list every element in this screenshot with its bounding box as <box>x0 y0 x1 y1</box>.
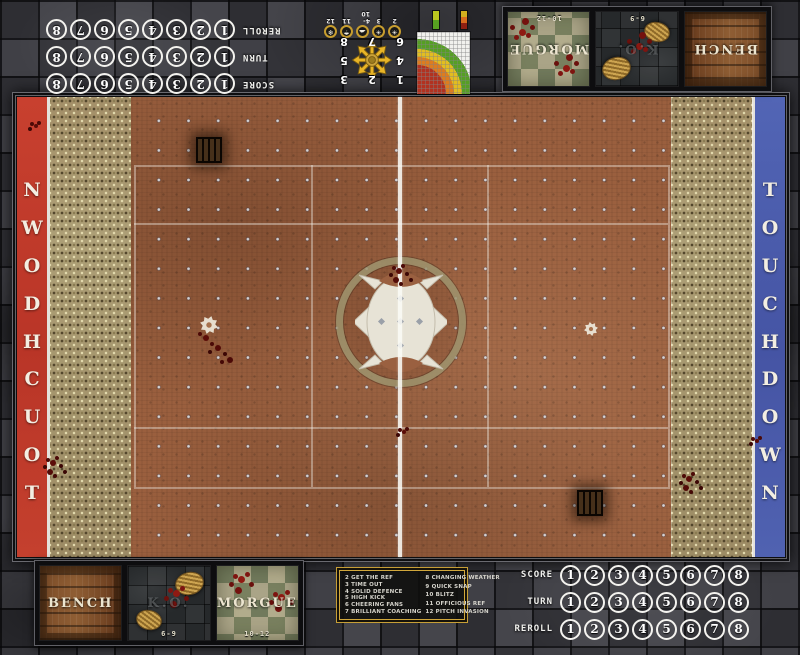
kickoff-entry: 9 QUICK SNAP <box>425 584 499 590</box>
trapdoor <box>577 490 603 516</box>
track-number-circle[interactable]: 2 <box>190 74 211 95</box>
kickoff-entry: 8 CHANGING WEATHER <box>425 575 499 581</box>
morgue-range: 10-12 <box>217 630 298 638</box>
scatter-2: 2 <box>358 70 386 89</box>
track-number-circle[interactable]: 8 <box>728 619 749 640</box>
score-track: SCORE 12345678 <box>505 564 757 586</box>
score-track: SCORE 12345678 <box>38 73 290 95</box>
scatter-8: 8 <box>330 32 358 51</box>
score-circles: 12345678 <box>46 74 235 95</box>
reroll-circles: 12345678 <box>46 20 235 41</box>
track-number-circle[interactable]: 4 <box>632 619 653 640</box>
kickoff-entry: 5 HIGH KICK <box>345 595 421 601</box>
track-number-circle[interactable]: 5 <box>118 74 139 95</box>
track-number-circle[interactable]: 1 <box>214 20 235 41</box>
kickoff-table-left-column: 2 GET THE REF3 TIME OUT4 SOLID DEFENCE5 … <box>345 575 421 615</box>
morgue-label: MORGUE <box>508 42 589 57</box>
halfway-line <box>398 97 402 557</box>
opponent-bench-zone[interactable]: BENCH <box>684 11 767 87</box>
weather-roll-label: 3 <box>376 17 380 24</box>
weather-roll-label: 11 <box>342 17 351 24</box>
ko-range: 6-9 <box>596 14 677 22</box>
track-number-circle[interactable]: 5 <box>656 619 677 640</box>
player-bench-zone[interactable]: BENCH <box>39 565 122 641</box>
track-number-circle[interactable]: 1 <box>560 592 581 613</box>
scatter-4: 4 <box>386 51 414 70</box>
morgue-label: MORGUE <box>217 596 298 611</box>
range-marker-bars <box>432 10 468 30</box>
blood-splatter <box>570 69 575 74</box>
turn-circles: 12345678 <box>46 47 235 68</box>
reroll-track: REROLL 12345678 <box>505 618 757 640</box>
track-number-circle[interactable]: 4 <box>142 47 163 68</box>
track-number-circle[interactable]: 8 <box>46 20 67 41</box>
track-number-circle[interactable]: 3 <box>166 47 187 68</box>
blood-bowl-game-mat: SCORE 12345678 TURN 12345678 REROLL 1234… <box>0 0 800 655</box>
kickoff-entry: 4 SOLID DEFENCE <box>345 589 421 595</box>
end-zone-left[interactable]: TOUCHDOWN <box>17 97 47 557</box>
blood-splatter <box>168 588 173 593</box>
player-ko-zone[interactable]: K.O. 6-9 <box>127 565 210 641</box>
track-number-circle[interactable]: 3 <box>166 74 187 95</box>
track-number-circle[interactable]: 3 <box>608 592 629 613</box>
score-label: SCORE <box>505 570 553 580</box>
track-number-circle[interactable]: 3 <box>608 619 629 640</box>
player-track-panel: SCORE 12345678 TURN 12345678 REROLL 1234… <box>505 564 757 646</box>
opponent-morgue-zone[interactable]: MORGUE 10-12 <box>507 11 590 87</box>
end-zone-right[interactable]: TOUCHDOWN <box>755 97 785 557</box>
track-number-circle[interactable]: 6 <box>94 20 115 41</box>
track-number-circle[interactable]: 1 <box>560 565 581 586</box>
playing-field[interactable] <box>131 97 671 557</box>
bench-label: BENCH <box>48 596 113 611</box>
scatter-6: 6 <box>386 32 414 51</box>
blood-splatter <box>526 33 531 38</box>
player-morgue-zone[interactable]: MORGUE 10-12 <box>216 565 299 641</box>
field-line-vertical-right <box>487 165 489 487</box>
track-number-circle[interactable]: 8 <box>728 592 749 613</box>
turn-circles: 12345678 <box>560 592 749 613</box>
track-number-circle[interactable]: 2 <box>584 592 605 613</box>
turn-track: TURN 12345678 <box>505 591 757 613</box>
hay-bale <box>600 54 634 83</box>
kickoff-table: 2 GET THE REF3 TIME OUT4 SOLID DEFENCE5 … <box>339 570 465 620</box>
turn-label: TURN <box>242 52 290 62</box>
track-number-circle[interactable]: 1 <box>214 74 235 95</box>
kickoff-entry: 7 BRILLIANT COACHING <box>345 609 421 615</box>
score-label: SCORE <box>242 79 290 89</box>
ko-label: K.O. <box>148 596 191 611</box>
trapdoor <box>196 137 222 163</box>
track-number-circle[interactable]: 4 <box>142 20 163 41</box>
marker-bar-green <box>432 10 440 30</box>
track-number-circle[interactable]: 7 <box>70 47 91 68</box>
track-number-circle[interactable]: 2 <box>584 565 605 586</box>
turn-track: TURN 12345678 <box>38 46 290 68</box>
reroll-label: REROLL <box>505 624 553 634</box>
track-number-circle[interactable]: 7 <box>70 20 91 41</box>
field-line-vertical-left <box>311 165 313 487</box>
scatter-3: 3 <box>330 70 358 89</box>
track-number-circle[interactable]: 2 <box>190 20 211 41</box>
scatter-center <box>358 51 386 70</box>
track-number-circle[interactable]: 4 <box>632 592 653 613</box>
track-number-circle[interactable]: 5 <box>118 47 139 68</box>
kickoff-entry: 10 BLITZ <box>425 592 499 598</box>
gear-logo-icon <box>579 317 602 340</box>
ko-range: 6-9 <box>128 630 209 638</box>
opponent-dugout: BENCH K.O. 6-9 MORGUE 10-12 <box>502 6 772 92</box>
scatter-template: 1 2 3 4 5 6 7 8 <box>330 32 414 89</box>
kickoff-table-right-column: 8 CHANGING WEATHER9 QUICK SNAP10 BLITZ11… <box>425 575 499 615</box>
morgue-range: 10-12 <box>508 14 589 22</box>
track-number-circle[interactable]: 7 <box>704 592 725 613</box>
kickoff-entry: 6 CHEERING FANS <box>345 602 421 608</box>
weather-roll-label: 4-10 <box>355 10 370 24</box>
track-number-circle[interactable]: 5 <box>656 592 677 613</box>
track-number-circle[interactable]: 2 <box>190 47 211 68</box>
track-number-circle[interactable]: 3 <box>608 565 629 586</box>
kickoff-entry: 2 GET THE REF <box>345 575 421 581</box>
ko-label: K.O. <box>616 42 659 57</box>
score-circles: 12345678 <box>560 565 749 586</box>
track-number-circle[interactable]: 8 <box>46 74 67 95</box>
end-zone-pattern-right[interactable] <box>671 97 753 557</box>
range-ruler-chart <box>417 32 470 94</box>
reroll-label: REROLL <box>242 25 290 35</box>
reroll-track: REROLL 12345678 <box>38 19 290 41</box>
kickoff-entry: 11 OFFICIOUS REF <box>425 601 499 607</box>
track-number-circle[interactable]: 5 <box>656 565 677 586</box>
track-number-circle[interactable]: 4 <box>142 74 163 95</box>
scatter-1: 1 <box>386 70 414 89</box>
track-number-circle[interactable]: 7 <box>70 74 91 95</box>
track-number-circle[interactable]: 1 <box>560 619 581 640</box>
player-dugout: BENCH K.O. 6-9 MORGUE 10-12 <box>34 560 304 646</box>
weather-roll-label: 2 <box>392 17 396 24</box>
end-zone-pattern-left[interactable] <box>50 97 132 557</box>
scatter-7: 7 <box>358 32 386 51</box>
bench-label: BENCH <box>693 42 758 57</box>
reroll-circles: 12345678 <box>560 619 749 640</box>
track-number-circle[interactable]: 3 <box>166 20 187 41</box>
kickoff-entry: 3 TIME OUT <box>345 582 421 588</box>
hay-bale <box>172 569 206 598</box>
opponent-templates-panel: 1 2 3 4 5 6 7 8 ☀ 2 ☀ 3 ☁ 4-10 <box>322 8 474 94</box>
track-number-circle[interactable]: 6 <box>680 565 701 586</box>
track-number-circle[interactable]: 6 <box>680 592 701 613</box>
marker-bar-red <box>460 10 468 30</box>
track-number-circle[interactable]: 4 <box>632 565 653 586</box>
weather-roll-label: 12 <box>326 17 335 24</box>
kickoff-entry: 12 PITCH INVASION <box>425 609 499 615</box>
scatter-5: 5 <box>330 51 358 70</box>
blood-splatter <box>233 574 238 579</box>
track-number-circle[interactable]: 8 <box>46 47 67 68</box>
track-number-circle[interactable]: 6 <box>94 47 115 68</box>
pitch[interactable]: TOUCHDOWN <box>12 92 790 562</box>
track-number-circle[interactable]: 1 <box>214 47 235 68</box>
opponent-ko-zone[interactable]: K.O. 6-9 <box>595 11 678 87</box>
track-number-circle[interactable]: 2 <box>584 619 605 640</box>
scatter-numbers: 1 2 3 4 5 6 7 8 <box>330 32 414 89</box>
track-number-circle[interactable]: 7 <box>704 565 725 586</box>
track-number-circle[interactable]: 8 <box>728 565 749 586</box>
track-number-circle[interactable]: 6 <box>94 74 115 95</box>
turn-label: TURN <box>505 597 553 607</box>
track-number-circle[interactable]: 7 <box>704 619 725 640</box>
track-number-circle[interactable]: 5 <box>118 20 139 41</box>
opponent-track-panel: SCORE 12345678 TURN 12345678 REROLL 1234… <box>38 13 290 95</box>
track-number-circle[interactable]: 6 <box>680 619 701 640</box>
hay-bale <box>135 608 165 633</box>
